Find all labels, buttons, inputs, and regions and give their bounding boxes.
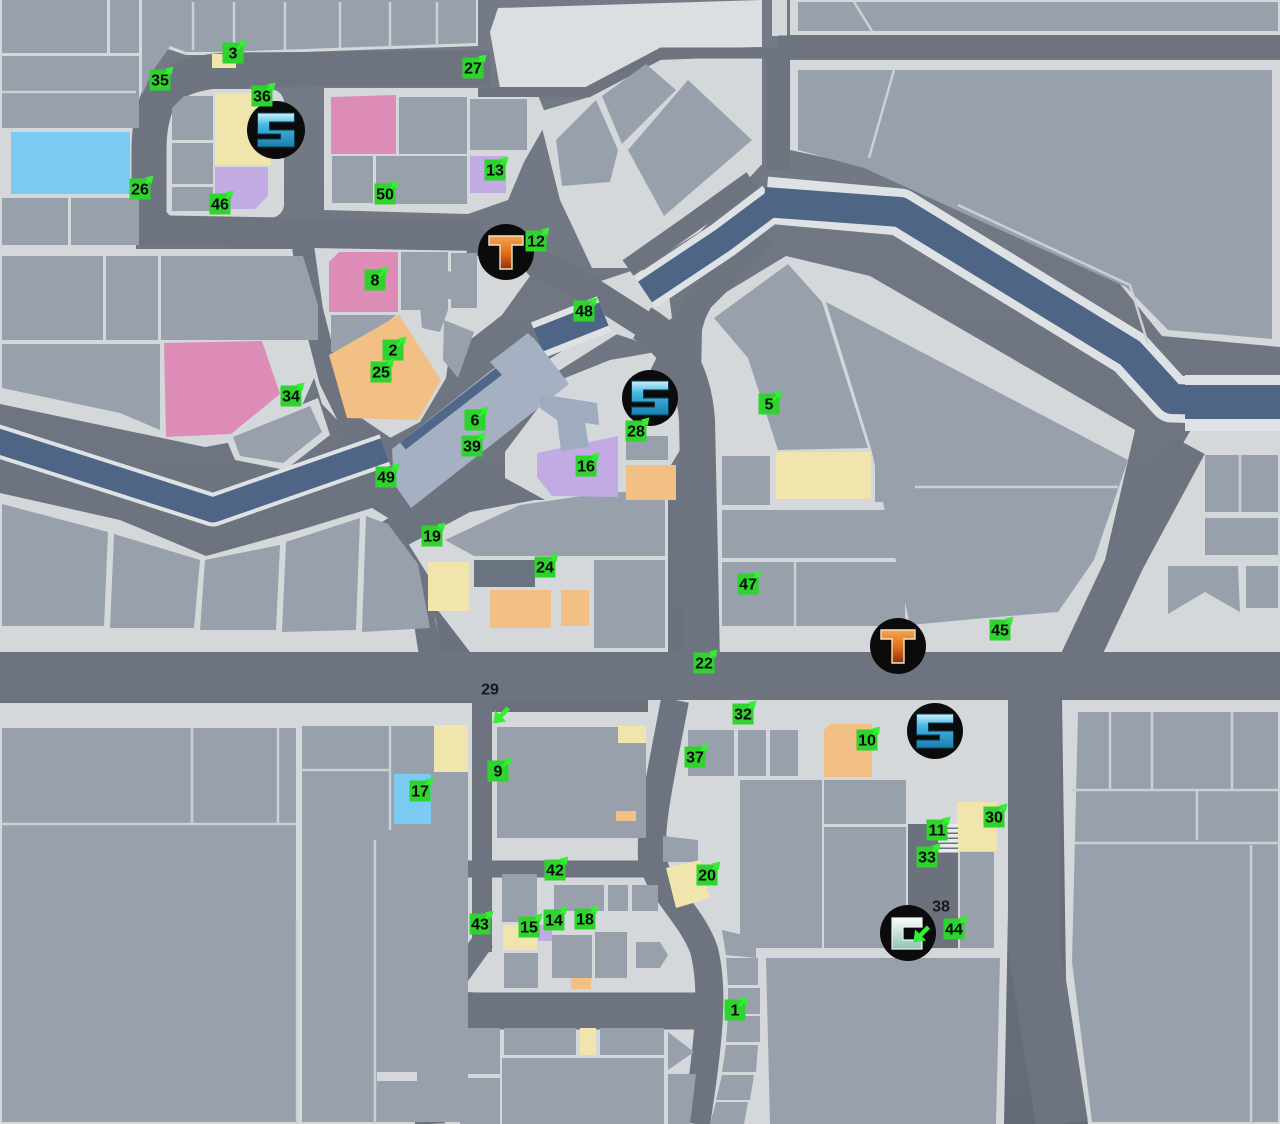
svg-text:28: 28 bbox=[627, 424, 645, 441]
svg-text:25: 25 bbox=[372, 365, 390, 382]
svg-text:2: 2 bbox=[389, 343, 398, 360]
svg-text:45: 45 bbox=[991, 623, 1009, 640]
svg-text:47: 47 bbox=[739, 577, 757, 594]
svg-text:12: 12 bbox=[527, 234, 545, 251]
svg-text:48: 48 bbox=[575, 304, 593, 321]
svg-text:16: 16 bbox=[577, 459, 595, 476]
svg-text:34: 34 bbox=[282, 389, 300, 406]
svg-text:39: 39 bbox=[463, 439, 481, 456]
svg-text:22: 22 bbox=[695, 656, 713, 673]
svg-text:6: 6 bbox=[471, 413, 480, 430]
svg-text:13: 13 bbox=[486, 163, 504, 180]
svg-text:5: 5 bbox=[765, 397, 774, 414]
svg-text:42: 42 bbox=[546, 863, 564, 880]
svg-text:20: 20 bbox=[698, 868, 716, 885]
svg-text:29: 29 bbox=[481, 682, 499, 699]
svg-text:19: 19 bbox=[423, 529, 441, 546]
svg-text:30: 30 bbox=[985, 810, 1003, 827]
svg-text:36: 36 bbox=[253, 89, 271, 106]
svg-text:9: 9 bbox=[494, 764, 503, 781]
svg-text:8: 8 bbox=[371, 273, 380, 290]
svg-text:44: 44 bbox=[945, 922, 963, 939]
svg-text:3: 3 bbox=[229, 46, 238, 63]
svg-text:33: 33 bbox=[918, 850, 936, 867]
svg-text:35: 35 bbox=[151, 73, 169, 90]
svg-text:37: 37 bbox=[686, 750, 704, 767]
svg-text:26: 26 bbox=[131, 182, 149, 199]
svg-text:49: 49 bbox=[377, 470, 395, 487]
svg-text:46: 46 bbox=[211, 197, 229, 214]
svg-text:14: 14 bbox=[545, 913, 563, 930]
svg-text:11: 11 bbox=[929, 823, 946, 840]
svg-text:43: 43 bbox=[471, 917, 489, 934]
svg-text:50: 50 bbox=[376, 187, 394, 204]
svg-text:18: 18 bbox=[576, 912, 594, 929]
svg-text:17: 17 bbox=[411, 784, 429, 801]
svg-text:32: 32 bbox=[734, 707, 752, 724]
svg-text:1: 1 bbox=[731, 1003, 740, 1020]
svg-text:15: 15 bbox=[520, 920, 538, 937]
svg-text:38: 38 bbox=[932, 899, 950, 916]
svg-text:24: 24 bbox=[536, 560, 554, 577]
svg-text:27: 27 bbox=[464, 61, 482, 78]
svg-text:10: 10 bbox=[858, 733, 876, 750]
